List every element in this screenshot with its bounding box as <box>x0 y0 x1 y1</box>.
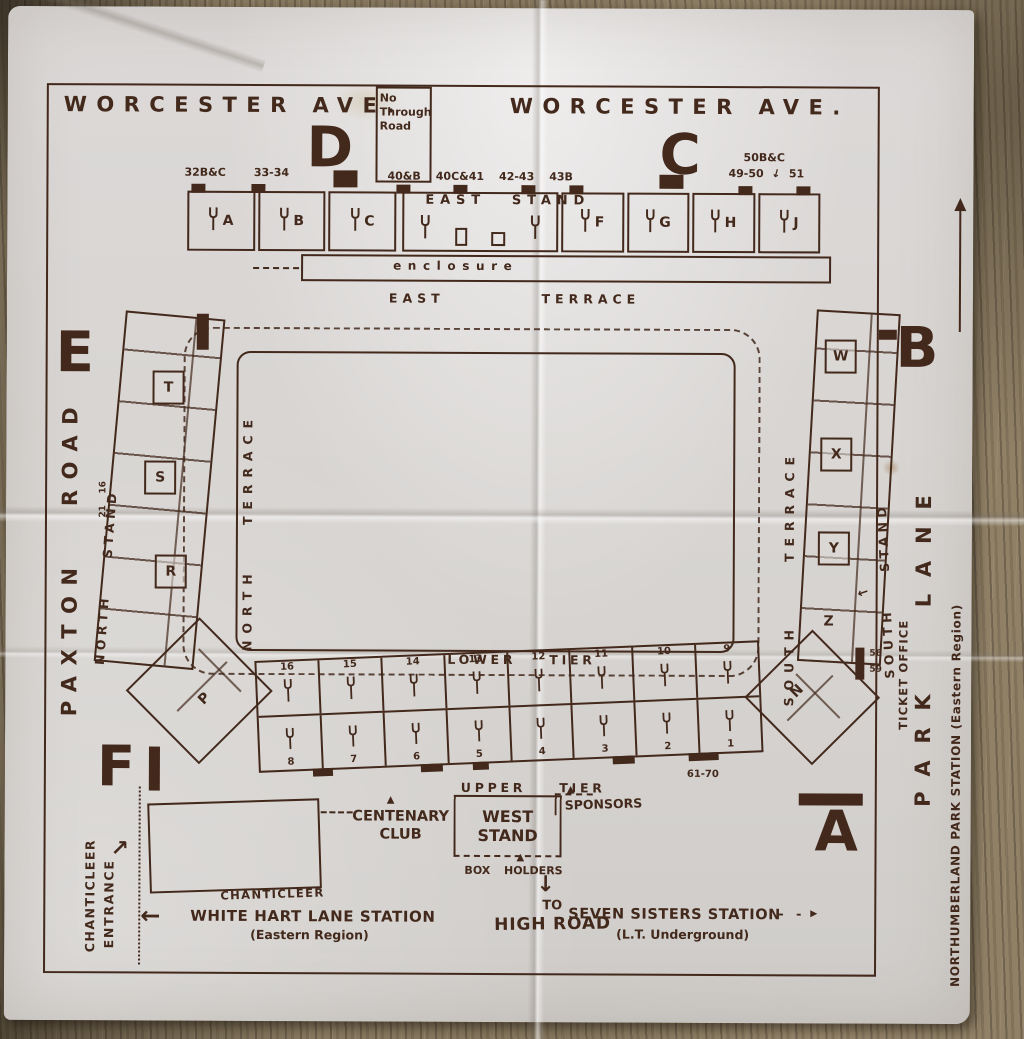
turnstile-icon <box>350 206 360 236</box>
enclosure-label: enclosure <box>393 259 518 274</box>
turnstile-number: 3 <box>601 745 608 755</box>
gate-label: 40&B <box>387 170 420 183</box>
whl-station-arrow-icon: ← <box>140 901 160 929</box>
turnstile-icon <box>725 705 735 739</box>
turnstile-number: 7 <box>350 755 357 765</box>
turnstile-cell: 8 <box>259 715 324 771</box>
stand-detail-box <box>491 232 505 246</box>
no-through-road-label: No Through Road <box>380 92 430 133</box>
block-R: R <box>155 555 187 589</box>
west-stand-outline: 16 15 14 <box>254 640 763 773</box>
down-arrow-icon: ↓ <box>770 166 782 181</box>
chanticleer-entrance-label-col1: CHANTICLEER <box>82 770 98 952</box>
pitch-outline <box>235 351 735 653</box>
turnstile-number: 9 <box>723 644 730 654</box>
section-bar-A <box>799 793 863 805</box>
block-label: X <box>831 446 842 462</box>
turnstile-cell: 12 <box>508 650 573 706</box>
turnstile-icon <box>599 711 609 745</box>
chanticleer-entrance-label-col2: ENTRANCE <box>101 788 117 948</box>
gate-label: 32B&C <box>184 166 225 179</box>
white-hart-lane-station-label: WHITE HART LANE STATION <box>190 907 435 926</box>
turnstile-icon <box>662 708 672 742</box>
stand-block-label: F <box>595 214 605 230</box>
gate-label: 43B <box>549 170 573 183</box>
turnstile-cell: 7 <box>322 713 387 769</box>
turnstile-cell: 15 <box>319 658 384 714</box>
centenary-arrow-icon: ▲ <box>387 795 395 806</box>
street-park-lane: PARK LANE <box>911 427 937 807</box>
gate-label: 51 <box>789 167 804 180</box>
section-letter-A: A <box>814 799 857 864</box>
turnstile-icon <box>597 660 608 698</box>
street-worcester-ave-right: WORCESTER AVE. <box>510 94 850 119</box>
gate-labels-middle: 40&B40C&4142-4343B <box>387 170 573 184</box>
turnstile-number: 11 <box>594 649 608 660</box>
turnstile-number: 6 <box>413 752 420 762</box>
turnstile-range-label: 61-70 <box>687 769 719 780</box>
west-stand-box: WEST STAND <box>454 795 562 857</box>
turnstile-number: 8 <box>287 757 294 767</box>
turnstile-number: 5 <box>476 750 483 760</box>
enclosure-dash <box>253 267 299 269</box>
turnstile-icon <box>420 212 430 246</box>
block-T: T <box>152 371 184 405</box>
gate-label: 49-50 <box>728 167 763 180</box>
to-label: TO <box>542 898 562 913</box>
turnstile-icon <box>711 208 721 238</box>
turnstile-cell: 6 <box>384 710 449 766</box>
section-letter-E: E <box>56 320 94 385</box>
turnstile-number: 12 <box>531 652 545 663</box>
seven-sisters-arrow-icon: ▸ <box>810 905 817 921</box>
turnstile-icon <box>473 716 483 750</box>
block-S: S <box>144 460 176 494</box>
gate-tick <box>659 175 683 189</box>
ticket-office-label: TICKET OFFICE <box>896 558 911 730</box>
gate-tick <box>333 170 357 187</box>
to-high-road-arrow-icon: ↓ <box>536 872 555 897</box>
box-holders-arrow-icon: ▲ <box>516 852 524 863</box>
street-worcester-ave-left: WORCESTER AVE. <box>64 92 404 117</box>
map-paper: WORCESTER AVE. No Through Road WORCESTER… <box>4 6 974 1024</box>
gate-label: 33-34 <box>254 166 289 179</box>
section-letter-B: B <box>896 316 938 381</box>
stand-block-label: C <box>364 213 374 229</box>
turnstile-cell: 4 <box>510 705 575 761</box>
turnstile-icon <box>723 654 734 692</box>
sponsors-label: SPONSORS <box>565 795 643 812</box>
gate-bar <box>855 648 864 680</box>
turnstile-icon <box>285 723 295 757</box>
turnstile-icon <box>581 207 591 237</box>
map-content: WORCESTER AVE. No Through Road WORCESTER… <box>0 0 1024 1039</box>
section-bar-F <box>149 747 160 791</box>
seven-sisters-sub-label: (L.T. Underground) <box>616 927 749 943</box>
west-gate-tick <box>421 763 443 772</box>
block-label: W <box>833 348 849 364</box>
turnstile-number: 13 <box>468 655 482 666</box>
block-label: R <box>165 564 176 580</box>
stand-block: F <box>561 192 624 252</box>
block-label: S <box>155 470 165 486</box>
section-bar-B <box>879 330 897 340</box>
stand-block: C <box>328 191 396 251</box>
south-gate-number: 59 <box>869 665 882 675</box>
west-gate-tick <box>473 761 489 770</box>
turnstile-cell: 16 <box>256 660 321 716</box>
east-terrace-label: EAST TERRACE <box>389 291 640 307</box>
photo-stage: WORCESTER AVE. No Through Road WORCESTER… <box>0 0 1024 1039</box>
gate-labels-left: 32B&C33-34 <box>184 166 289 179</box>
stand-block-label: A <box>223 213 234 229</box>
turnstile-icon <box>346 670 357 708</box>
turnstile-cell: 2 <box>636 700 701 756</box>
turnstile-number: 1 <box>727 739 734 749</box>
stand-block-label: H <box>725 215 737 231</box>
sponsors-arrow-icon: ▲ <box>567 784 575 795</box>
turnstile-icon <box>348 721 358 755</box>
east-stand-blocks-left: A B C <box>187 191 399 252</box>
stand-block: H <box>692 193 755 253</box>
white-hart-lane-region-label: (Eastern Region) <box>250 927 369 943</box>
centenary-club-label: CENTENARY CLUB <box>342 807 460 844</box>
turnstile-icon <box>279 206 289 236</box>
turnstile-icon <box>645 208 655 238</box>
chanticleer-box <box>147 798 322 893</box>
turnstile-icon <box>209 206 219 236</box>
station-arrow-line <box>959 210 962 332</box>
west-stand-name: WEST STAND <box>472 807 544 846</box>
turnstile-number: 15 <box>343 660 357 671</box>
turnstile-number: 16 <box>280 662 294 673</box>
turnstile-number: 4 <box>539 747 546 757</box>
turnstile-icon <box>536 713 546 747</box>
stand-block-label: B <box>293 213 304 229</box>
turnstile-cell: 1 <box>698 697 761 752</box>
stand-block: G <box>627 193 690 253</box>
turnstile-icon <box>471 665 482 703</box>
turnstile-icon <box>660 657 671 695</box>
turnstile-icon <box>411 718 421 752</box>
turnstile-icon <box>283 672 294 710</box>
west-gate-tick <box>313 768 333 777</box>
street-paxton-road: PAXTON ROAD <box>57 386 82 716</box>
west-gate-tick <box>613 755 635 764</box>
station-arrow-head-icon <box>954 198 966 211</box>
turnstile-icon <box>530 212 540 246</box>
block-Y: Y <box>818 531 850 565</box>
stand-detail-box <box>455 228 467 246</box>
gate-labels-right: 49-50 ↓ 51 <box>728 167 804 180</box>
turnstile-cell: 13 <box>445 653 510 709</box>
turnstile-icon <box>534 662 545 700</box>
gate-label: 40C&41 <box>436 170 484 183</box>
stand-block-label: G <box>659 215 671 231</box>
stand-block: J <box>758 193 821 253</box>
block-W: W <box>825 339 857 373</box>
paper-crease <box>14 0 265 73</box>
turnstile-cell: 10 <box>633 645 698 701</box>
turnstile-cell: 9 <box>696 642 759 697</box>
block-Z-label: Z <box>824 613 834 629</box>
enclosure-strip <box>301 254 831 283</box>
turnstile-cell: 14 <box>382 655 447 711</box>
turnstile-cell: 5 <box>447 708 512 764</box>
block-X: X <box>820 437 852 471</box>
seven-sisters-station-label: SEVEN SISTERS STATION <box>568 906 781 923</box>
west-gate-tick <box>689 752 719 761</box>
stand-block-label: J <box>793 215 798 231</box>
east-stand-blocks-right: F G H J <box>561 192 823 253</box>
turnstile-cell: 11 <box>571 647 636 703</box>
block-label: Y <box>829 540 839 556</box>
seven-sisters-dash: - - <box>778 907 805 922</box>
gate-label-50bc: 50B&C <box>744 151 785 164</box>
turnstile-number: 14 <box>406 657 420 668</box>
section-bar-E <box>197 314 209 350</box>
turnstile-number: 2 <box>664 742 671 752</box>
northumberland-station-label: NORTHUMBERLAND PARK STATION (Eastern Reg… <box>948 337 965 987</box>
gate-label: 42-43 <box>499 170 534 183</box>
turnstile-cell: 3 <box>573 702 638 758</box>
stand-block: B <box>258 191 326 251</box>
turnstile-number: 10 <box>657 647 671 658</box>
block-label: T <box>164 380 174 396</box>
stand-block: A <box>187 191 255 251</box>
turnstile-icon <box>408 667 419 705</box>
turnstile-icon <box>779 208 789 238</box>
north-terrace-label: NORTH TERRACE <box>239 351 255 651</box>
